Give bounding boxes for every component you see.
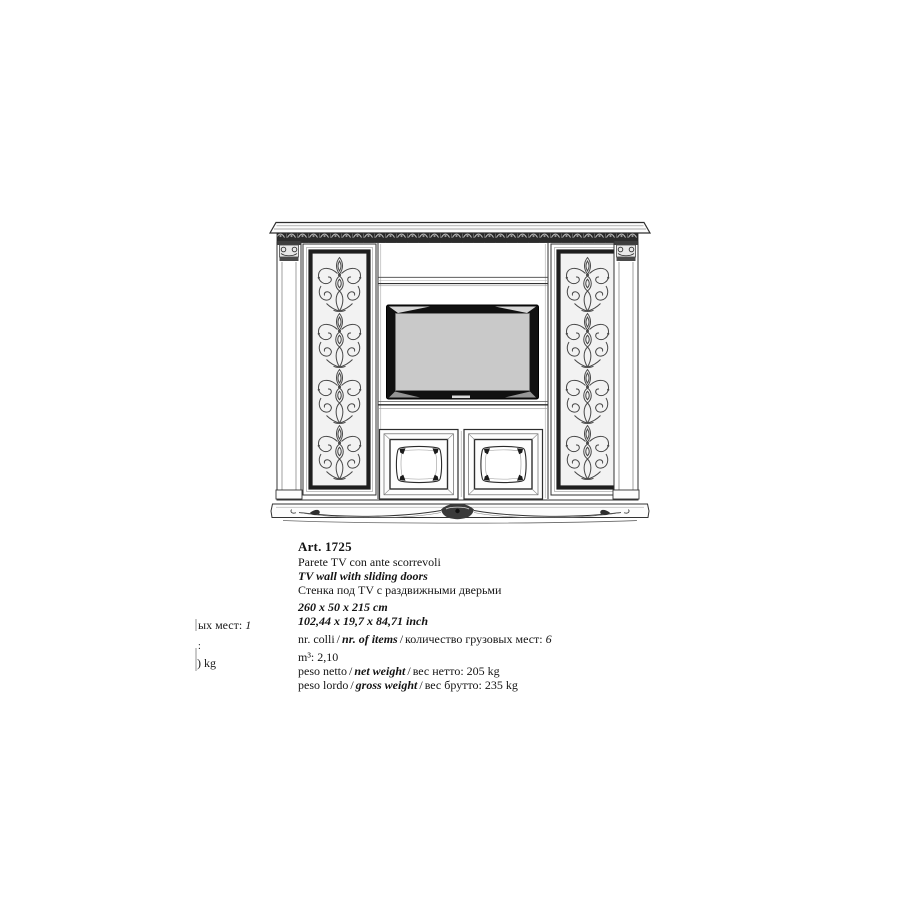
separator: / (400, 632, 403, 646)
cornice (270, 223, 650, 234)
sliding-door-right (551, 244, 624, 495)
dimensions-cm: 260 x 50 x 215 cm (298, 600, 388, 614)
product-name-en: TV wall with sliding doors (298, 569, 428, 583)
net-weight-label-ru: вес нетто: (413, 664, 464, 678)
volume-line: m³:2,10 (298, 650, 338, 664)
plinth-base (271, 504, 649, 523)
pilaster-left (276, 242, 302, 499)
separator: / (337, 632, 340, 646)
gross-weight-label-it: peso lordo (298, 678, 348, 692)
scan-artifact (195, 619, 197, 631)
cutoff-places-label: ых мест: (198, 618, 242, 632)
separator: / (407, 664, 410, 678)
gross-weight-label-ru: вес брутто: (425, 678, 482, 692)
separator: / (419, 678, 422, 692)
cutoff-kg-fragment: ) kg (197, 656, 216, 670)
volume-label: m³: (298, 650, 314, 664)
cutoff-places-fragment: ых мест:1 (198, 618, 251, 632)
packages-label-en: nr. of items (342, 632, 398, 646)
gross-weight-value: 235 kg (485, 678, 518, 692)
gross-weight-line: peso lordo/gross weight/вес брутто:235 k… (298, 678, 518, 692)
cutoff-colon-fragment: : (198, 640, 201, 654)
separator: / (350, 678, 353, 692)
net-weight-label-en: net weight (354, 664, 405, 678)
packages-line: nr. colli/nr. of items/количество грузов… (298, 632, 552, 646)
net-weight-value: 205 kg (467, 664, 500, 678)
carved-frieze (277, 233, 638, 243)
tv-wall-unit-drawing (268, 216, 654, 528)
tv-screen (396, 314, 530, 391)
tv (387, 305, 539, 399)
separator: / (349, 664, 352, 678)
packages-label-ru: количество грузовых мест: (405, 632, 543, 646)
cutoff-places-value: 1 (245, 618, 251, 632)
packages-label-it: nr. colli (298, 632, 335, 646)
gross-weight-label-en: gross weight (356, 678, 418, 692)
packages-value: 6 (546, 632, 552, 646)
capital-left (278, 241, 301, 261)
lower-door-right (464, 430, 543, 500)
dimensions-inch: 102,44 x 19,7 x 84,71 inch (298, 614, 428, 628)
lower-door-left (380, 430, 459, 500)
product-name-it: Parete TV con ante scorrevoli (298, 555, 441, 569)
volume-value: 2,10 (317, 650, 338, 664)
sliding-door-left (303, 244, 376, 495)
product-art-code: Art. 1725 (298, 540, 352, 554)
pilaster-right (613, 242, 639, 499)
product-name-ru: Стенка под TV с раздвижными дверьми (298, 583, 501, 597)
catalog-page: Art. 1725 Parete TV con ante scorrevoli … (0, 0, 900, 900)
net-weight-line: peso netto/net weight/вес нетто:205 kg (298, 664, 500, 678)
net-weight-label-it: peso netto (298, 664, 347, 678)
tv-wall-unit-svg (268, 216, 654, 528)
capital-right (615, 241, 638, 261)
